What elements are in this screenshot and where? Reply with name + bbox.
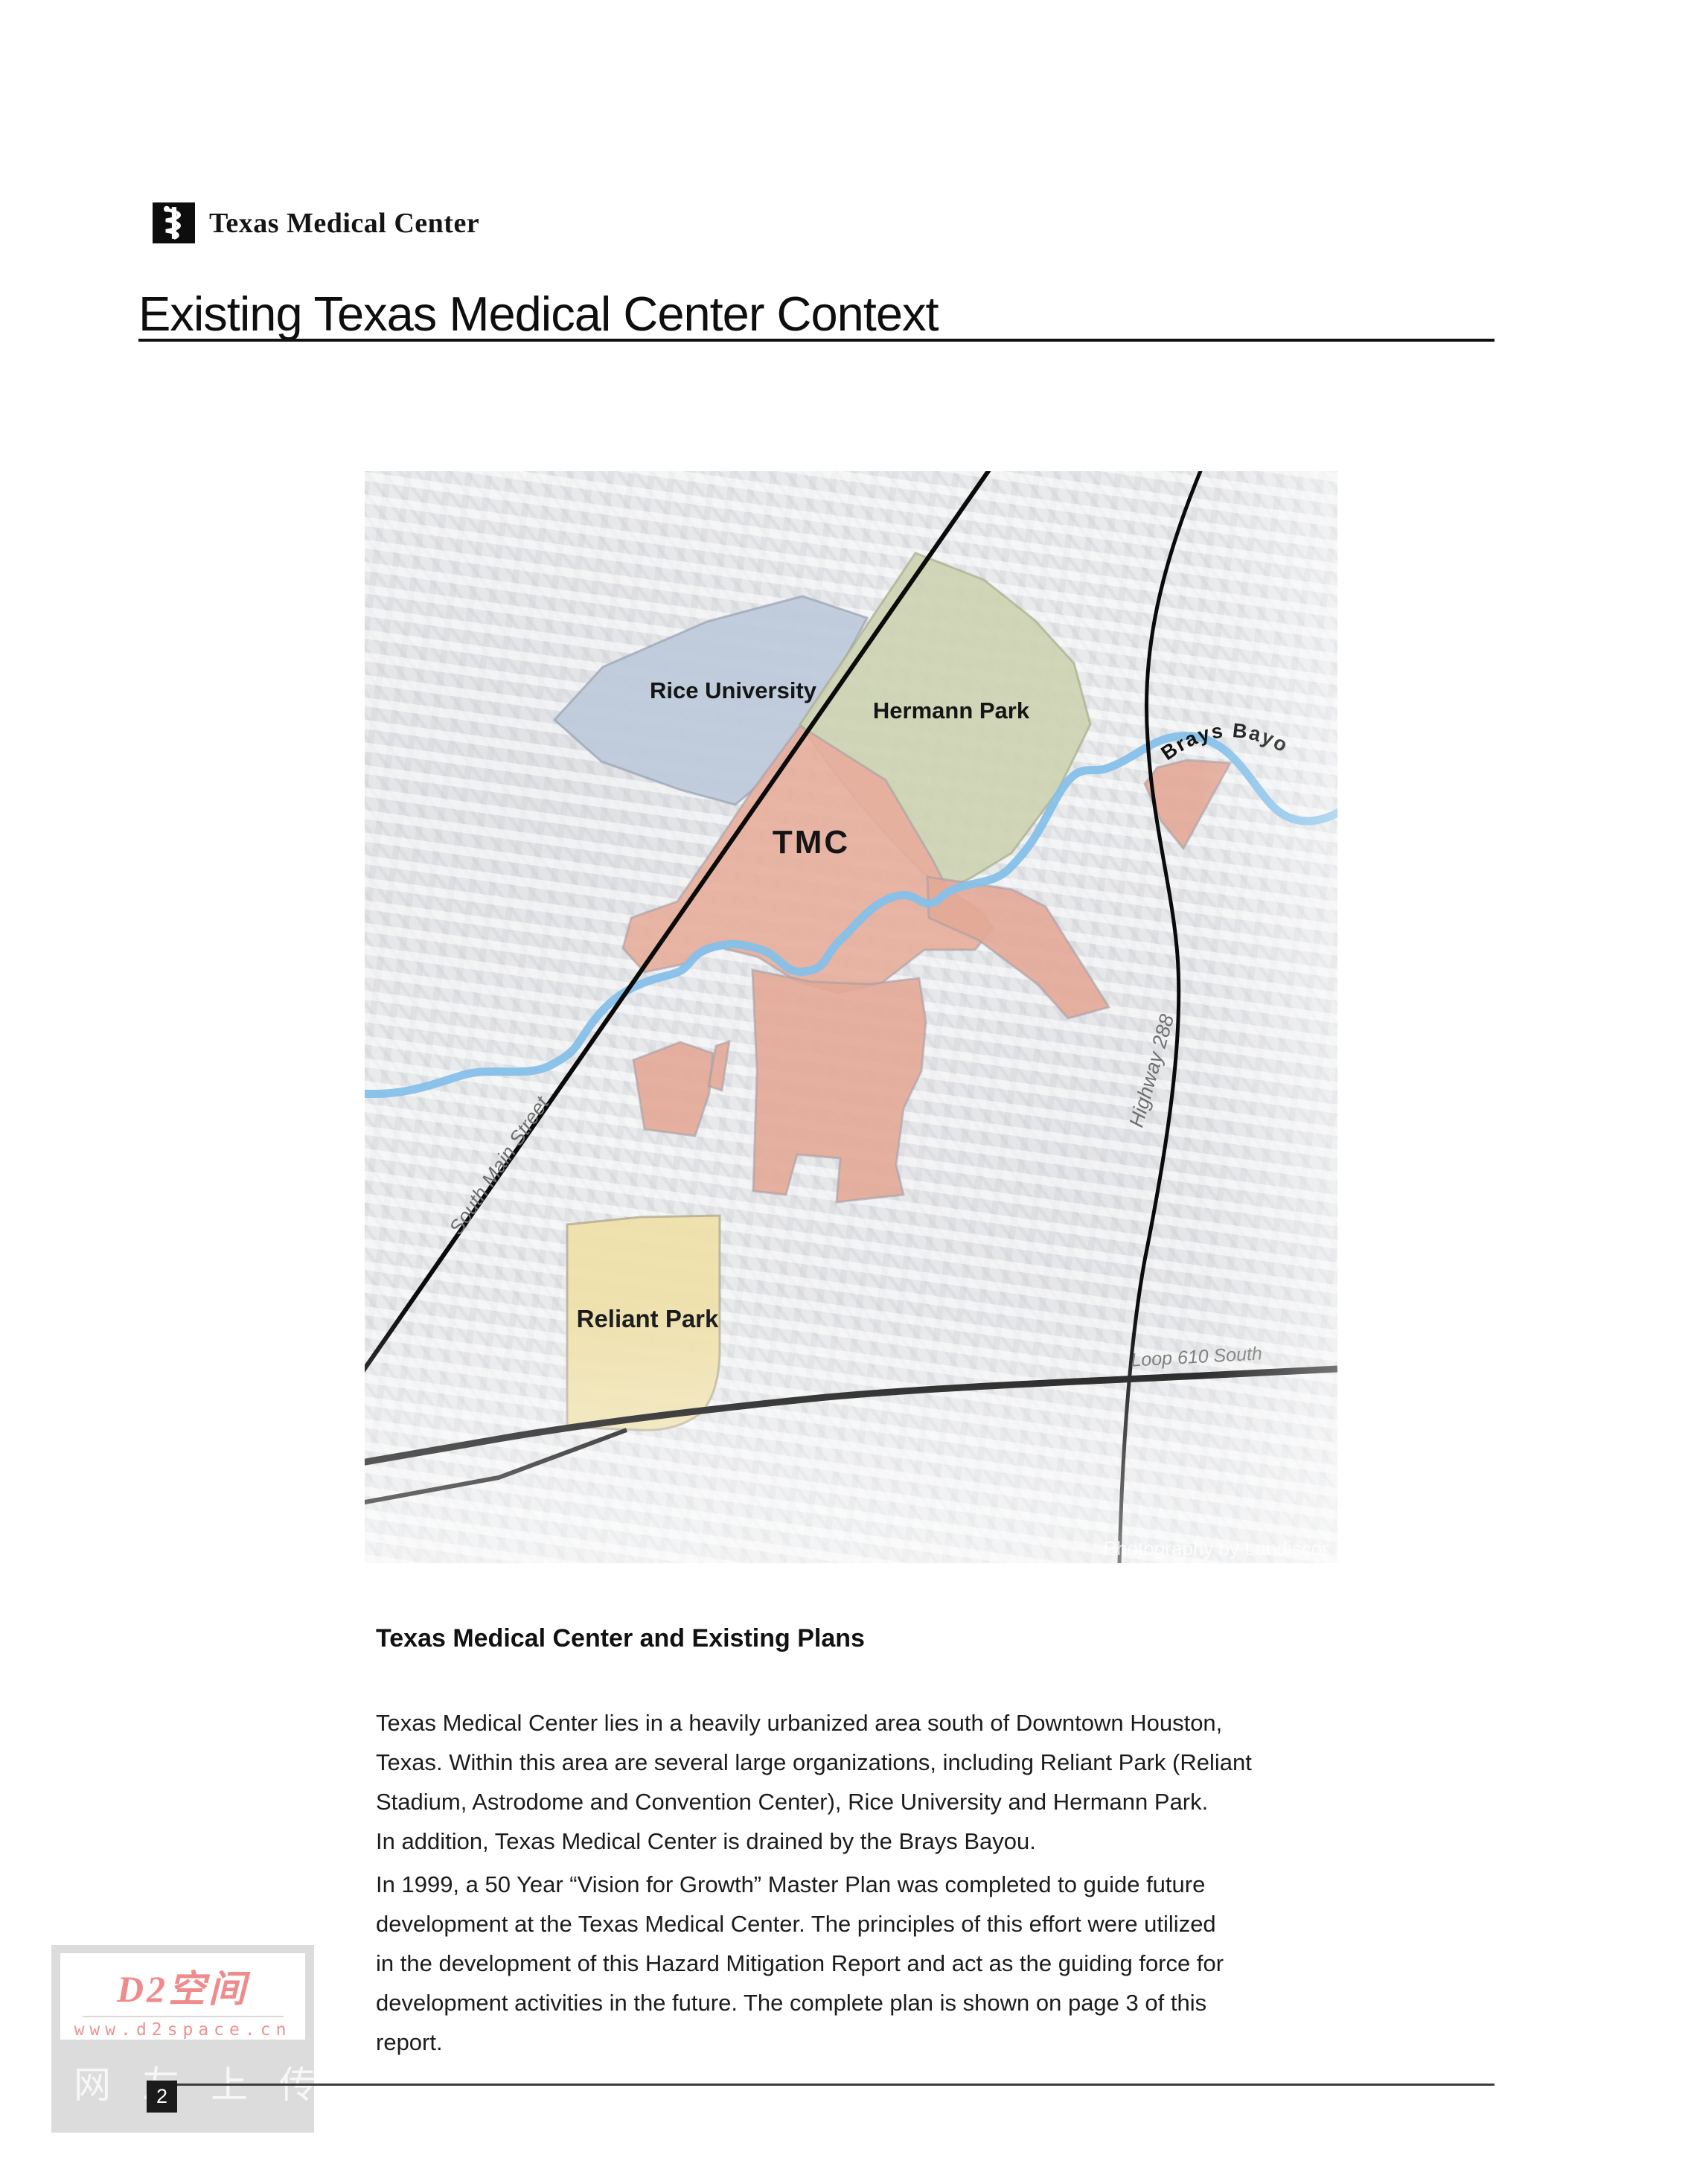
tmc-logo-icon [153, 202, 195, 243]
context-map-graphics: Rice University Hermann Park TMC Reliant… [365, 471, 1337, 1563]
photography-credit: Photography by Landiscor [1104, 1537, 1329, 1559]
tmc-south-area [752, 970, 926, 1202]
watermark-card: D2空间 www.d2space.cn [60, 1953, 305, 2040]
paragraph-2-line: in the development of this Hazard Mitiga… [376, 1944, 1224, 1983]
paragraph-1-line: In addition, Texas Medical Center is dra… [376, 1821, 1252, 1861]
tmc-southwest-sliver-area [709, 1041, 729, 1091]
page-number: 2 [147, 2081, 177, 2113]
loop-610-road [365, 1369, 1337, 1463]
tmc-label: TMC [773, 824, 850, 860]
caduceus-icon [153, 202, 195, 243]
section-heading: Texas Medical Center and Existing Plans [376, 1624, 865, 1653]
rice-university-label: Rice University [650, 677, 817, 703]
paragraph-2-line: development at the Texas Medical Center.… [376, 1904, 1224, 1944]
watermark-logo: D2空间 [60, 1959, 305, 2013]
paragraph-1: Texas Medical Center lies in a heavily u… [376, 1703, 1252, 1861]
hermann-park-label: Hermann Park [873, 697, 1030, 724]
watermark-url: www.d2space.cn [60, 2020, 305, 2040]
page-title: Existing Texas Medical Center Context [138, 286, 939, 342]
tmc-southwest-area [633, 1042, 713, 1136]
paragraph-1-line: Stadium, Astrodome and Convention Center… [376, 1782, 1252, 1821]
watermark-caption: 网友上传 [74, 2055, 348, 2109]
context-map: Rice University Hermann Park TMC Reliant… [365, 471, 1337, 1563]
watermark-divider [83, 2016, 284, 2017]
uploader-watermark: D2空间 www.d2space.cn 网友上传 [51, 1945, 314, 2133]
paragraph-1-line: Texas. Within this area are several larg… [376, 1743, 1252, 1782]
loop-610-south-label: Loop 610 South [1131, 1343, 1263, 1370]
paragraph-1-line: Texas Medical Center lies in a heavily u… [376, 1703, 1252, 1743]
footer-rule [147, 2084, 1494, 2086]
paragraph-2: In 1999, a 50 Year “Vision for Growth” M… [376, 1865, 1224, 2062]
brand-wordmark: Texas Medical Center [209, 207, 479, 240]
reliant-park-label: Reliant Park [577, 1305, 719, 1332]
title-underline [138, 339, 1494, 342]
south-main-street-label: South Main Street [445, 1092, 554, 1239]
paragraph-2-line: report. [376, 2022, 1224, 2062]
paragraph-2-line: development activities in the future. Th… [376, 1983, 1224, 2022]
paragraph-2-line: In 1999, a 50 Year “Vision for Growth” M… [376, 1865, 1224, 1904]
document-page: Texas Medical Center Existing Texas Medi… [0, 0, 1688, 2184]
